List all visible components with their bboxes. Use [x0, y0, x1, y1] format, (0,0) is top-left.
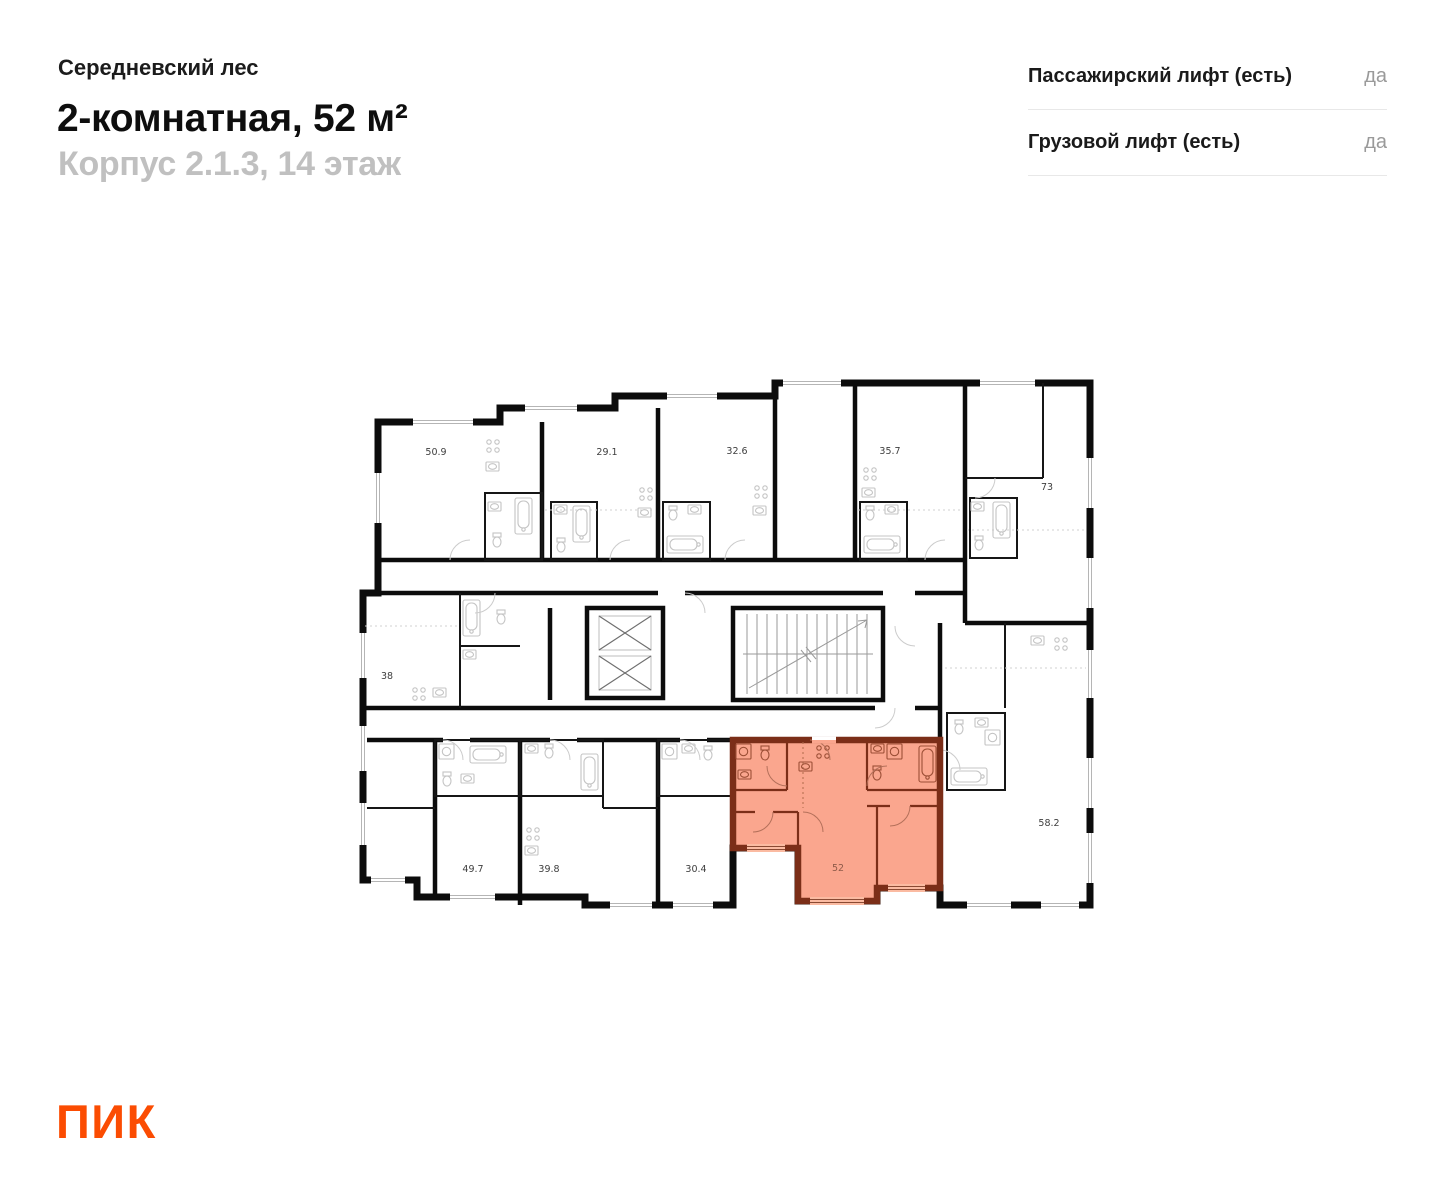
- entry-gap: [812, 737, 836, 740]
- unit-area-label: 35.7: [879, 446, 900, 457]
- lift-info-row: Грузовой лифт (есть) да: [1028, 110, 1387, 176]
- entry-gap: [812, 740, 836, 743]
- unit-area-label: 29.1: [596, 447, 617, 458]
- unit-area-label: 58.2: [1038, 818, 1059, 829]
- lift-info-value: да: [1364, 131, 1387, 154]
- project-name: Середневский лес: [58, 55, 259, 81]
- highlighted-apartment-outline[interactable]: [733, 740, 940, 901]
- unit-area-label: 49.7: [462, 864, 483, 875]
- page-title: 2-комнатная, 52 м²: [57, 97, 408, 141]
- lift-info-row: Пассажирский лифт (есть) да: [1028, 44, 1387, 110]
- lift-info-label: Грузовой лифт (есть): [1028, 131, 1240, 154]
- unit-area-label: 30.4: [685, 864, 706, 875]
- lift-info-label: Пассажирский лифт (есть): [1028, 65, 1292, 88]
- lift-info-panel: Пассажирский лифт (есть) да Грузовой лиф…: [1028, 44, 1387, 176]
- page-subtitle: Корпус 2.1.3, 14 этаж: [58, 145, 401, 184]
- building-outline: [363, 383, 1090, 905]
- unit-area-label: 39.8: [538, 864, 559, 875]
- floor-plan: 52 50.9 29.1 32.6 35.7 73 38 49.7 39.8 3…: [355, 378, 1095, 918]
- unit-area-label: 38: [381, 671, 393, 682]
- highlighted-apartment[interactable]: 52: [733, 737, 940, 905]
- pik-logo[interactable]: ПИК: [56, 1094, 157, 1149]
- unit-area-label: 73: [1041, 482, 1053, 493]
- lift-info-value: да: [1364, 65, 1387, 88]
- unit-area-label: 32.6: [726, 446, 747, 457]
- highlighted-area-label: 52: [832, 863, 844, 874]
- unit-area-label: 50.9: [425, 447, 446, 458]
